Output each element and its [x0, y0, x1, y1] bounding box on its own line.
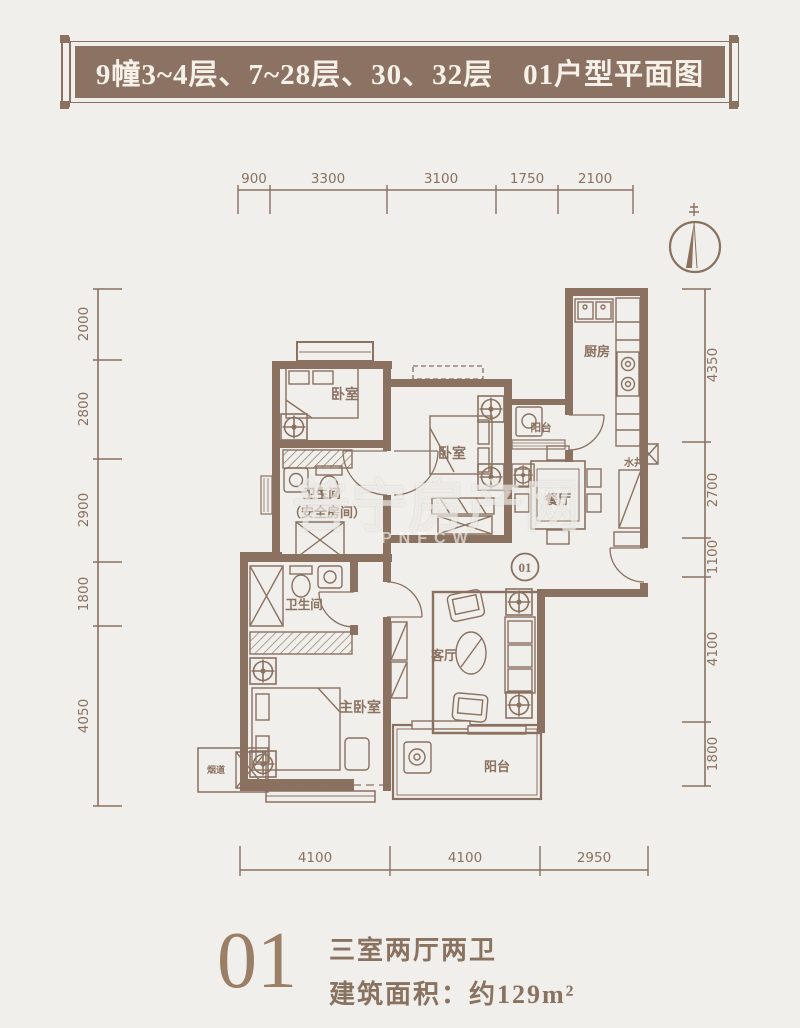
dim-top-5: 2100 [578, 171, 612, 187]
dim-left-3: 2900 [76, 493, 92, 527]
unit-number-label: 01 [519, 560, 532, 575]
dim-right-3: 1100 [705, 540, 721, 574]
shower-bathroom2 [250, 566, 283, 626]
dim-left-5: 4050 [76, 699, 92, 733]
floor-plan-canvas: 900 3300 3100 1750 2100 4100 4100 2950 2… [0, 0, 800, 1028]
dimension-labels: 900 3300 3100 1750 2100 4100 4100 2950 2… [76, 171, 721, 866]
door-bathroom2 [319, 592, 354, 627]
door-entry [610, 548, 644, 582]
label-master-bedroom: 主卧室 [339, 699, 381, 716]
kitchen-sink [575, 299, 613, 322]
label-service-balcony: 阳台 [531, 421, 552, 434]
banner-right-ornament [730, 37, 739, 107]
dim-bottom-1: 4100 [298, 850, 332, 866]
label-bathroom1: 卫生间 [303, 486, 341, 501]
dim-left-4: 1800 [76, 577, 92, 611]
dim-top-4: 1750 [510, 171, 544, 187]
kitchen-stove [617, 352, 639, 396]
compass-north-icon [670, 203, 720, 272]
shower-bathroom1 [296, 522, 344, 558]
window-master-bedroom [266, 791, 375, 802]
label-bathroom1-note: （安全房间） [288, 505, 366, 520]
caption-layout-type: 三室两厅两卫 [329, 930, 575, 967]
kitchen-counter [616, 298, 640, 446]
window-bathroom1 [261, 476, 272, 514]
dim-right-4: 4100 [705, 632, 721, 666]
unit-number-marker: 01 [512, 554, 539, 581]
wardrobe-bathroom1 [283, 450, 352, 468]
banner-left-ornament [61, 37, 70, 107]
walls [240, 288, 648, 791]
dim-top-2: 3300 [311, 171, 345, 187]
hallway-cabinets [391, 622, 407, 698]
label-bedroom1: 卧室 [331, 386, 359, 403]
bay-window-bedroom2 [413, 366, 483, 379]
label-flue: 烟道 [207, 764, 225, 775]
cabinet-bedroom2 [432, 498, 494, 534]
toilet-bathroom2 [290, 566, 312, 597]
page-title: 9幢3~4层、7~28层、30、32层 01户型平面图 [96, 51, 704, 93]
caption-floor-area: 建筑面积：约129m² [329, 974, 575, 1011]
dim-bottom-2: 4100 [448, 850, 482, 866]
label-living: 客厅 [431, 648, 457, 663]
wardrobe-master [250, 632, 352, 654]
service-balcony-sill [512, 440, 565, 449]
door-bedroom2 [394, 451, 438, 495]
dim-top-1: 900 [241, 171, 267, 187]
dim-left-1: 2000 [76, 307, 92, 341]
label-balcony: 阳台 [484, 759, 510, 774]
dim-left-2: 2800 [76, 392, 92, 426]
bay-window-bedroom1 [297, 342, 373, 361]
bed-bedroom2 [430, 416, 492, 474]
dim-top-3: 3100 [424, 171, 458, 187]
door-kitchen [569, 415, 604, 450]
label-kitchen: 厨房 [584, 344, 610, 359]
title-banner: 9幢3~4层、7~28层、30、32层 01户型平面图 [70, 41, 730, 103]
dim-bottom-3: 2950 [577, 850, 611, 866]
dim-right-2: 2700 [705, 473, 721, 507]
label-bedroom2: 卧室 [438, 445, 466, 462]
washing-machine-balcony [404, 742, 431, 773]
unit-caption: 01 三室两厅两卫 建筑面积：约129m² [217, 920, 575, 1011]
sink-bathroom2 [318, 566, 342, 588]
dim-right-1: 4350 [705, 348, 721, 382]
label-water-shaft: 水井 [623, 456, 644, 469]
door-master-bedroom [387, 582, 422, 617]
label-bathroom2: 卫生间 [285, 597, 323, 612]
furniture [198, 298, 658, 792]
caption-unit-number: 01 [217, 920, 297, 1002]
label-dining: 餐厅 [544, 492, 571, 507]
dim-right-5: 1800 [705, 737, 721, 771]
